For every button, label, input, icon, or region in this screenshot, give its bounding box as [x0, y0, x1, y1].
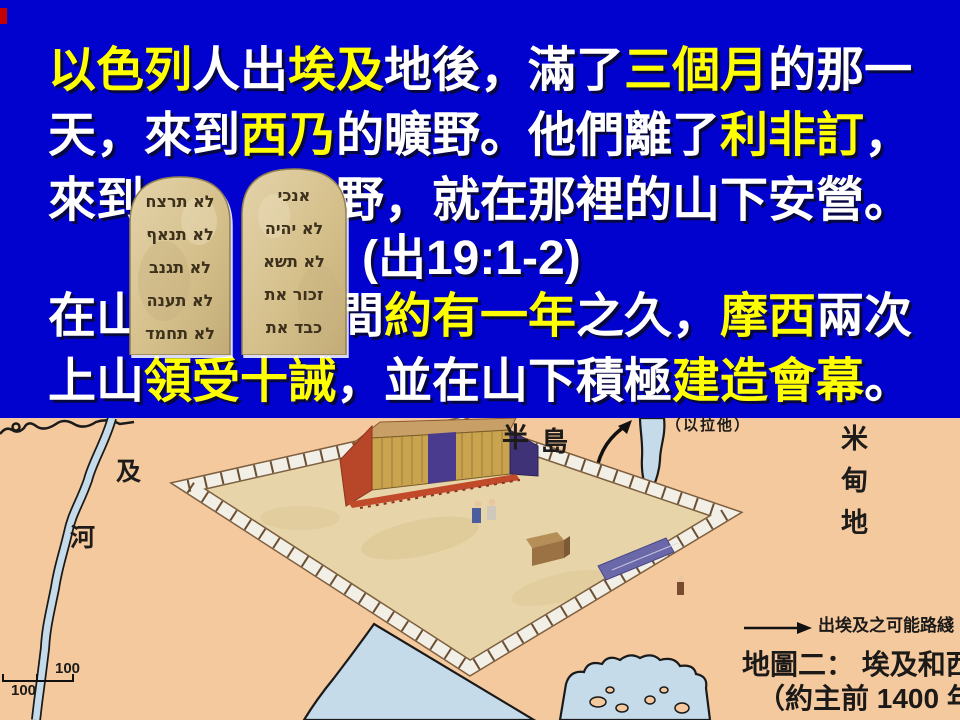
text-segment: 的曠野。他們離了	[336, 109, 720, 162]
ten-commandments-tablets: לא תרצח לא תנאף לא תגנב לא תענה לא תחמד …	[124, 161, 364, 355]
label-peninsula-2: 島	[541, 429, 568, 456]
text-segment: 西乃	[240, 109, 336, 162]
slide: 以色列人出埃及地後，滿了三個月的那一 天，來到西乃的曠野。他們離了利非訂， 來到…	[0, 0, 960, 720]
text-segment: 天，來到	[48, 109, 240, 162]
hebrew-line: אנכי	[278, 186, 311, 205]
hebrew-line: לא תרצח	[146, 192, 215, 211]
text-segment: ，並在山下積極	[336, 355, 672, 408]
label-river: 河	[70, 526, 95, 551]
banner-line-6: 上山領受十誡，並在山下積極建造會幕。	[48, 356, 912, 408]
text-segment: 利非訂	[720, 109, 864, 162]
text-segment: 野，就在那裡的山下安營。	[336, 174, 912, 227]
banner-line-1: 以色列人出埃及地後，滿了三個月的那一	[48, 45, 912, 97]
label-midian: 米甸地	[838, 424, 865, 550]
legend-route-arrow	[744, 622, 812, 634]
text-segment: 。	[864, 355, 912, 408]
label-eilat: （以拉他）	[666, 419, 751, 434]
text-segment: (出19:1-2)	[362, 232, 581, 285]
text-segment: 以色列	[48, 44, 192, 97]
text-segment: 人出	[192, 44, 288, 97]
text-segment: 摩西	[720, 290, 816, 343]
label-egypt: 及	[116, 460, 141, 485]
scale-label-left: 100	[11, 683, 36, 698]
text-segment: 領受十誡	[144, 355, 336, 408]
map-section: 及 河 半 島 （以拉他） 米甸地 100 100 出埃及之可能路綫 地圖二： …	[0, 418, 960, 720]
hebrew-line: כבד את	[266, 318, 322, 337]
text-segment: 的那一	[768, 44, 912, 97]
text-segment: 之久，	[576, 290, 720, 343]
tablet-left: לא תרצח לא תנאף לא תגנב לא תענה לא תחמד	[130, 177, 230, 355]
text-segment: 地後，滿了	[384, 44, 624, 97]
text-segment: 上山	[48, 355, 144, 408]
hebrew-line: לא תשא	[263, 252, 325, 271]
map-caption-date: （約主前 1400 年）	[757, 685, 960, 713]
scale-label-right: 100	[55, 661, 80, 676]
hebrew-line: לא תנאף	[146, 225, 214, 244]
hebrew-line: לא יהיה	[265, 219, 323, 238]
banner-line-2: 天，來到西乃的曠野。他們離了利非訂，	[48, 110, 912, 162]
map-caption-title: 地圖二： 埃及和西奈	[742, 651, 960, 679]
text-segment: ，	[864, 109, 912, 162]
hebrew-line: זכור את	[265, 285, 324, 304]
banner-line-3-end: 野，就在那裡的山下安營。	[336, 175, 912, 227]
tablet-right: אנכי לא יהיה לא תשא זכור את כבד את	[242, 169, 346, 355]
banner-line-5-end: 間約有一年之久，摩西兩次	[336, 291, 912, 343]
text-segment: 建造會幕	[672, 355, 864, 408]
red-sea	[560, 655, 710, 720]
text-segment: 兩次	[816, 290, 912, 343]
hebrew-line: לא תגנב	[149, 258, 211, 277]
text-segment: 埃及	[288, 44, 384, 97]
text-segment: 約有一年	[384, 290, 576, 343]
hebrew-line: לא תחמד	[145, 324, 215, 343]
text-segment: 三個月	[624, 44, 768, 97]
label-peninsula-1: 半	[502, 425, 529, 452]
hebrew-line: לא תענה	[147, 291, 214, 310]
edge-artifact	[0, 8, 7, 24]
legend-route-label: 出埃及之可能路綫	[818, 617, 954, 634]
scripture-reference: (出19:1-2)	[362, 233, 581, 285]
